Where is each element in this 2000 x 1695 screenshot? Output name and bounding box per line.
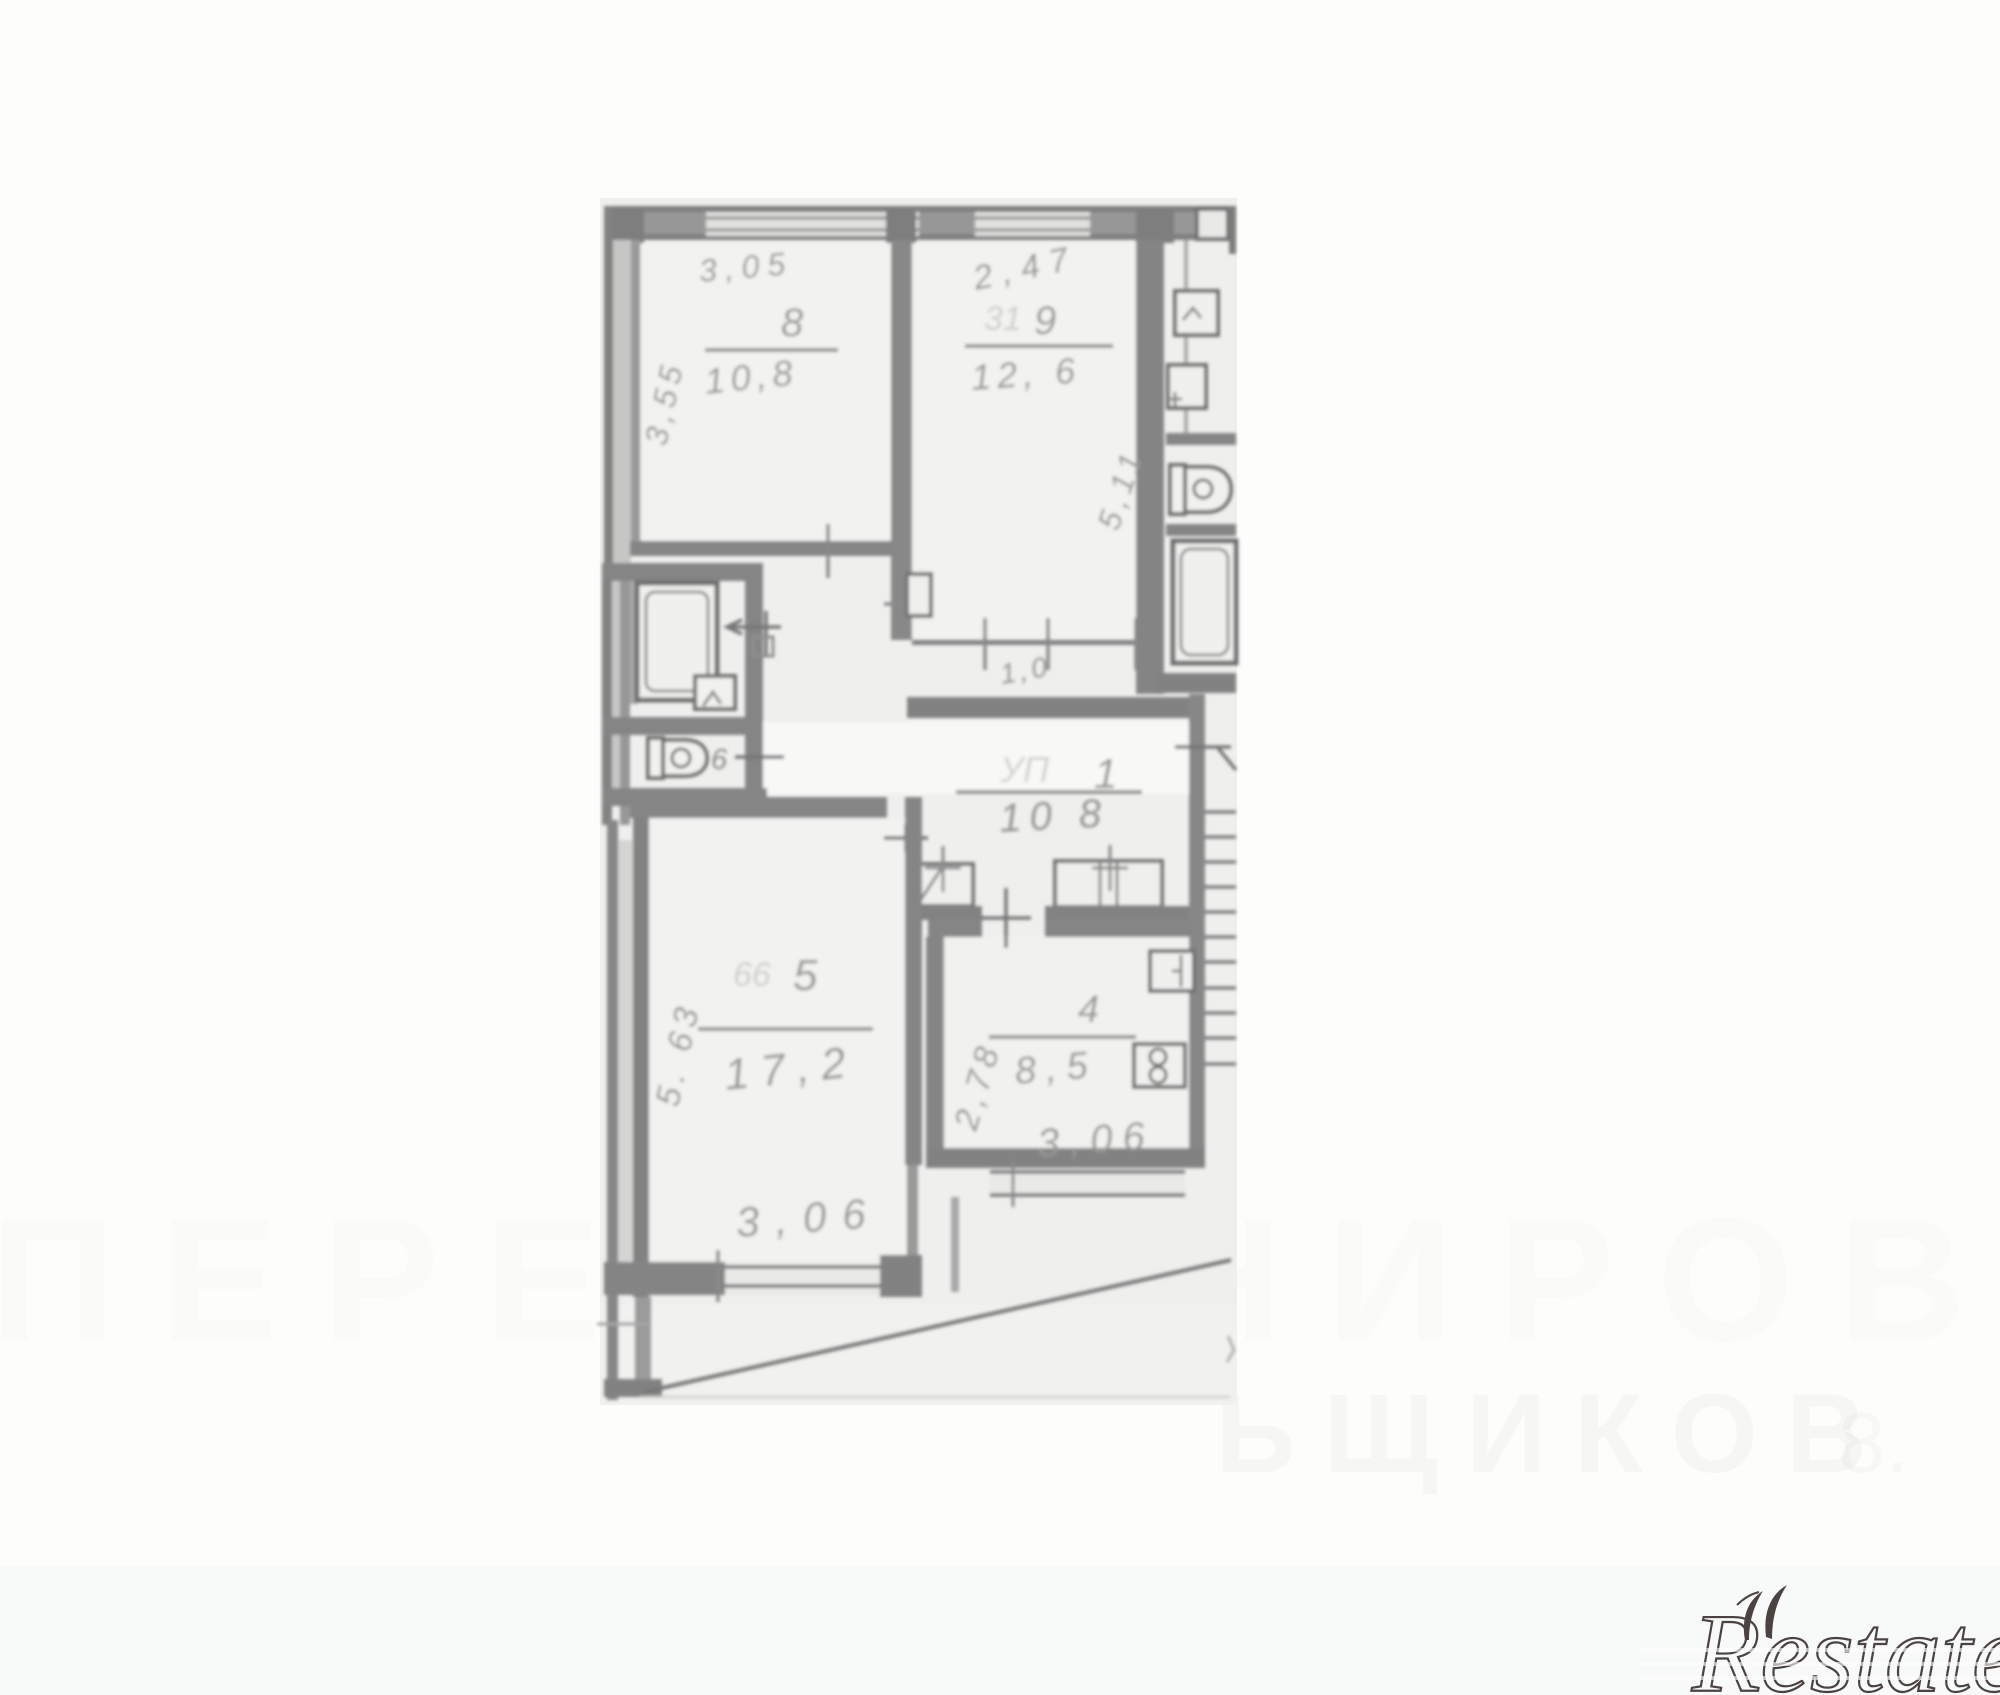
svg-text:12, 6: 12, 6 <box>970 349 1083 398</box>
svg-text:8,5: 8,5 <box>1013 1044 1099 1093</box>
svg-text:8: 8 <box>781 301 804 345</box>
svg-text:УП: УП <box>999 749 1050 790</box>
svg-text:31: 31 <box>984 300 1022 338</box>
svg-text:5: 5 <box>793 951 818 1000</box>
svg-text:1: 1 <box>1094 750 1117 797</box>
svg-text:66: 66 <box>733 956 771 994</box>
svg-text:3,06: 3,06 <box>1036 1114 1157 1166</box>
svg-text:6: 6 <box>711 744 728 776</box>
svg-text:ЬЩИКОВ: ЬЩИКОВ <box>1215 1371 1895 1496</box>
svg-text:10 8: 10 8 <box>998 791 1110 841</box>
svg-text:9: 9 <box>1034 299 1056 343</box>
svg-text:4: 4 <box>1078 989 1099 1031</box>
svg-text:8.: 8. <box>1838 1396 1909 1491</box>
